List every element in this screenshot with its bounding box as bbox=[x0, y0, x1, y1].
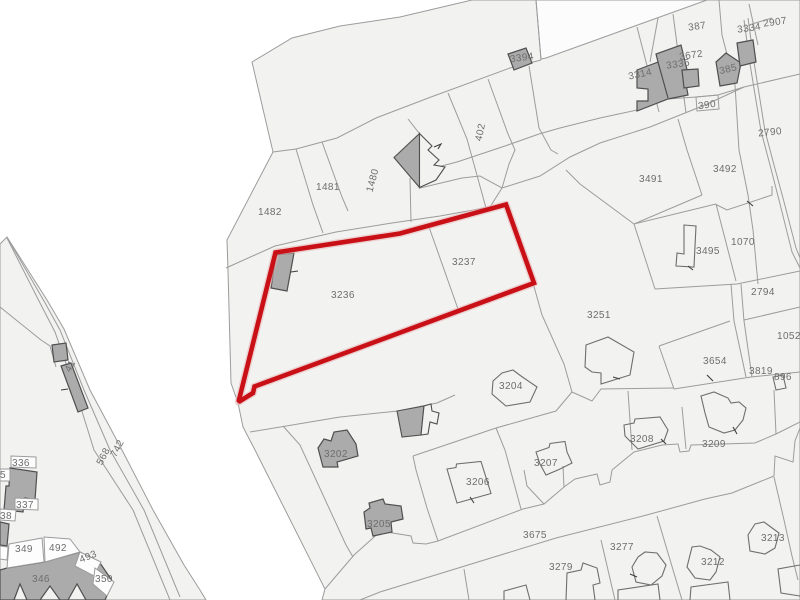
svg-text:896: 896 bbox=[774, 372, 792, 383]
svg-text:3202: 3202 bbox=[324, 449, 348, 460]
svg-text:3213: 3213 bbox=[761, 533, 785, 544]
svg-text:336: 336 bbox=[12, 458, 30, 469]
svg-text:3206: 3206 bbox=[466, 477, 490, 488]
svg-text:1481: 1481 bbox=[316, 182, 340, 193]
svg-text:3208: 3208 bbox=[630, 434, 654, 445]
svg-text:1052: 1052 bbox=[777, 331, 800, 342]
svg-text:3237: 3237 bbox=[452, 257, 476, 268]
svg-text:3204: 3204 bbox=[499, 381, 523, 392]
svg-text:3675: 3675 bbox=[523, 530, 547, 541]
svg-text:3654: 3654 bbox=[703, 356, 727, 367]
svg-text:1482: 1482 bbox=[258, 207, 282, 218]
svg-text:3277: 3277 bbox=[610, 542, 634, 553]
svg-text:3495: 3495 bbox=[696, 246, 720, 257]
svg-text:350: 350 bbox=[95, 574, 113, 585]
svg-text:3279: 3279 bbox=[549, 562, 573, 573]
svg-text:1070: 1070 bbox=[731, 237, 755, 248]
svg-text:3492: 3492 bbox=[713, 164, 737, 175]
svg-text:349: 349 bbox=[15, 544, 33, 555]
svg-text:2794: 2794 bbox=[751, 287, 775, 298]
svg-text:3205: 3205 bbox=[367, 519, 391, 530]
svg-text:3819: 3819 bbox=[749, 366, 773, 377]
svg-text:3212: 3212 bbox=[701, 557, 725, 568]
svg-text:3491: 3491 bbox=[639, 174, 663, 185]
svg-text:5: 5 bbox=[0, 470, 6, 481]
svg-text:346: 346 bbox=[32, 574, 50, 585]
svg-text:3251: 3251 bbox=[587, 310, 611, 321]
svg-text:492: 492 bbox=[49, 543, 67, 554]
svg-text:3207: 3207 bbox=[534, 458, 558, 469]
svg-text:3209: 3209 bbox=[702, 439, 726, 450]
svg-text:38: 38 bbox=[0, 511, 12, 522]
svg-text:3236: 3236 bbox=[331, 290, 355, 301]
svg-text:337: 337 bbox=[16, 500, 34, 511]
